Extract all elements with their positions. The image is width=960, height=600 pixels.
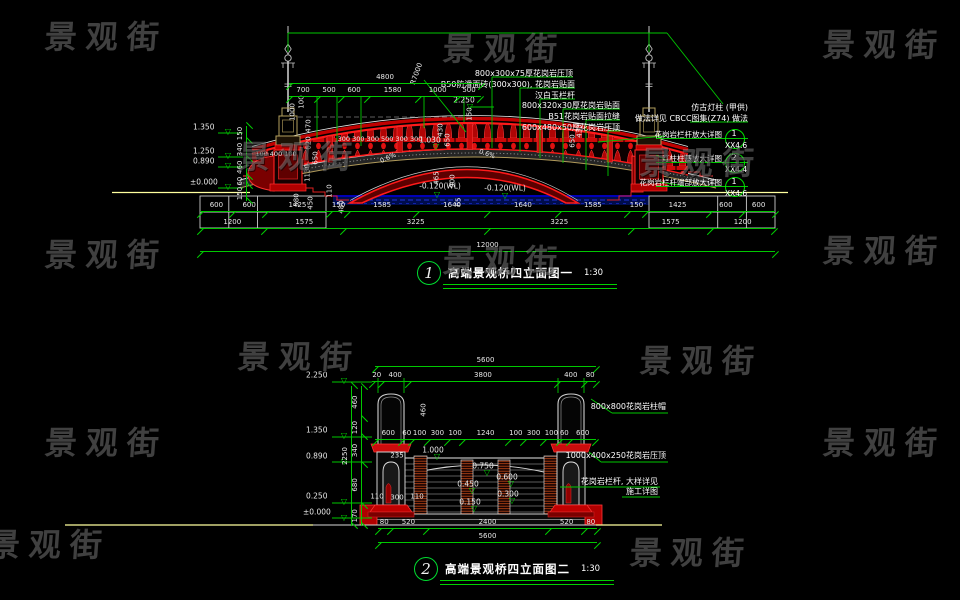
dimension-value: 170 [352,509,359,522]
dimension-value: 1425 [289,202,307,209]
dimension-chain: 15060460340150 [233,126,247,201]
dimension-value: 1425 [669,202,687,209]
drawing-title-text: 高端景观桥四立面图二 [445,561,570,577]
annotation-label: 做法详见 CBCC图集(Z74) 做法 [635,115,748,123]
dimension-label: 650 [570,134,577,147]
dimension-label: 100 400 100 [255,151,296,158]
dimension-value: 100 [448,430,461,437]
dimension-value: 1640 [443,202,461,209]
drawing-title-text: 高端景观桥四立面图一 [448,265,573,281]
annotation-label: 仿古灯柱 (甲供) [691,104,748,112]
dimension-segment: 1575 [631,219,710,228]
dimension-segment: 3800 [409,372,557,381]
dimension-segment: 2250 [342,386,351,526]
annotation-label: 800x320x30厚花岗岩贴面 [522,102,620,110]
dimension-value: 600 [210,202,223,209]
dimension-segment: 80 [378,519,390,528]
dimension-chain: 2250 [338,386,352,526]
dimension-value: 120 [352,421,359,434]
dimension-segment: 1240 [463,430,508,439]
dimension-label: ±0.000 [190,178,218,186]
level-marker-icon: ▽ [434,453,440,461]
dimension-chain: 4800 [289,70,481,84]
dimension-value: 60 [560,430,569,437]
dimension-label: 235 [390,453,403,460]
dimension-label: 300 300 300 500 300 300 [338,136,423,143]
dimension-chain: 70050060015801000500 [289,83,481,97]
dimension-segment: 400 [382,372,409,381]
dimension-value: 20 [372,372,381,379]
drawing-title-1: 1 高端景观桥四立面图一 1:30 [417,261,617,285]
dimension-value: 700 [296,87,309,94]
dimension-label: 2.250 [306,371,327,379]
dimension-segment: 1585 [348,202,417,211]
dimension-label: -0.120(WL) [419,182,461,190]
dimension-segment: 600 [709,202,742,211]
dimension-label: 650 [313,151,320,164]
dimension-segment: 500 [317,87,341,96]
annotation-label: 800x800花岗岩柱帽 [591,403,666,411]
dimension-value: 1000 [429,87,447,94]
dimension-value: 340 [352,444,359,457]
dimension-value: 520 [402,519,415,526]
dimension-segment: 600 [233,202,266,211]
dimension-value: 150 [237,127,244,140]
level-marker-icon: ▽ [484,469,490,477]
dimension-segment: 150 [329,202,347,211]
dimension-value: 460 [237,161,244,174]
dimension-value: 600 [242,202,255,209]
level-marker-icon: ▽ [469,487,475,495]
dimension-segment: 100 [412,430,428,439]
dimension-segment: 5600 [378,533,597,542]
dimension-chain: 5600 [378,529,597,543]
dimension-segment: 460 [237,158,246,176]
dimension-label: 1000 [290,103,297,121]
cad-sheet: 1 高端景观桥四立面图一 1:30 2 高端景观桥四立面图二 1:30 景观街景… [0,0,960,600]
dimension-chain: 60060100300100124010030010060600 [375,426,596,440]
dimension-segment: 80 [584,372,596,381]
dimension-segment: 300 [524,430,544,439]
dimension-label: 150 [467,107,474,120]
detail-note: 灯柱柱基放大详图 [662,153,722,164]
drawing-scale: 1:30 [584,268,603,278]
dimension-label: 300 [390,495,403,502]
dimension-value: 1640 [514,202,532,209]
detail-number-badge: 2 [414,557,438,581]
dimension-segment: 1200 [200,219,265,228]
dimension-segment: 600 [742,202,775,211]
dimension-segment: 1000 [418,87,457,96]
dimension-segment: 1585 [558,202,627,211]
dimension-segment: 600 [375,430,402,439]
level-marker-icon: ▽ [225,162,231,170]
dimension-segment: 1580 [367,87,418,96]
dimension-value: 500 [462,87,475,94]
dimension-value: 1585 [373,202,391,209]
level-marker-icon: ▽ [225,128,231,136]
dimension-chain: 12000 [200,238,775,252]
dimension-value: 1575 [295,219,313,226]
dimension-label: ±0.000 [303,508,331,516]
level-marker-icon: ▽ [471,505,477,513]
dimension-segment: 12000 [200,242,775,251]
dimension-segment: 3225 [487,219,631,228]
dimension-value: 600 [382,430,395,437]
level-marker-icon: ▽ [433,143,439,151]
dimension-segment: 1640 [488,202,559,211]
dimension-segment: 4800 [289,74,481,83]
dimension-segment: 60 [402,430,412,439]
dimension-segment: 700 [289,87,317,96]
sheet-code: XX4.4 [725,165,747,174]
dimension-value: 150 [630,202,643,209]
dimension-segment: 1425 [646,202,710,211]
annotation-label: 施工详图 [626,488,658,496]
level-marker-icon: ▽ [509,497,515,505]
dimension-value: 3225 [407,219,425,226]
dimension-value: 300 [431,430,444,437]
dimension-label: 0.890 [193,157,214,165]
detail-number: 1 [725,177,743,186]
dimension-label: 0.890 [306,452,327,460]
dimension-label: 110 [410,494,423,501]
dimension-chain: 80520240052080 [378,515,597,529]
dimension-label: 110 [327,184,334,197]
dimension-segment: 600 [341,87,367,96]
dimension-value: 300 [527,430,540,437]
dimension-value: 5600 [477,357,495,364]
dimension-value: 60 [237,177,244,186]
detail-number: 2 [725,153,743,162]
dimension-segment: 2400 [426,519,548,528]
dimension-segment: 500 [457,87,481,96]
sheet-code: XX4.6 [725,189,747,198]
drawing-scale: 1:30 [581,564,600,574]
dimension-segment: 60 [559,430,569,439]
dimension-value: 150 [332,202,345,209]
dimension-value: 100 [509,430,522,437]
dimension-value: 600 [752,202,765,209]
level-marker-icon: ▽ [508,480,514,488]
dimension-chain: 6006001425150158516401640158515014256006… [200,198,775,212]
dimension-value: 460 [352,396,359,409]
dimension-value: 2250 [342,447,349,465]
dimension-segment: 100 [508,430,524,439]
dimension-segment: 460 [352,386,361,418]
detail-number: 1 [725,129,743,138]
dimension-value: 520 [560,519,573,526]
dimension-segment: 5600 [375,357,596,366]
dimension-segment: 1200 [710,219,775,228]
annotation-label: 花岗岩栏杆, 大样详见 [581,478,658,486]
dimension-segment: 1640 [417,202,488,211]
dimension-segment: 150 [237,126,246,141]
dimension-value: 12000 [476,242,498,249]
dimension-segment: 520 [549,519,585,528]
dimension-segment: 520 [390,519,426,528]
dimension-value: 400 [564,372,577,379]
dimension-value: 5600 [479,533,497,540]
dimension-segment: 60 [237,176,246,186]
dimension-segment: 20 [372,372,382,381]
detail-note: 花岗岩栏杆放大详图 [655,129,723,140]
annotation-label: 1000x400x250花岗岩压顶 [566,452,666,460]
detail-note: 花岗岩栏杆端部放大详图 [640,177,723,188]
annotation-label: 汉白玉栏杆 [535,92,575,100]
level-marker-icon: ▽ [341,377,347,385]
dimension-value: 600 [576,430,589,437]
dimension-segment: 120 [352,418,361,436]
dimension-segment: 100 [544,430,560,439]
detail-number-badge: 1 [417,261,441,285]
dimension-label: 620 [306,136,313,149]
dimension-value: 80 [586,519,595,526]
dimension-segment: 1575 [265,219,344,228]
dimension-label: 470 [306,119,313,132]
dimension-value: 60 [402,430,411,437]
dimension-segment: 340 [237,141,246,158]
dimension-label: 0.250 [306,492,327,500]
level-marker-icon: ▽ [225,183,231,191]
dimension-segment: 150 [627,202,645,211]
dimension-segment: 150 [237,186,246,201]
dimension-segment: 600 [569,430,596,439]
dimension-value: 500 [322,87,335,94]
dimension-value: 600 [719,202,732,209]
dimension-label: 100 [299,95,306,108]
dimension-label: 1.250 [193,147,214,155]
dimension-value: 80 [586,372,595,379]
dimension-chain: 20400380040080 [372,368,596,382]
annotation-label: 600x480x50厚花岗岩压顶 [522,124,620,132]
dimension-label: 1.350 [306,426,327,434]
dimension-value: 4800 [376,74,394,81]
dimension-segment: 3225 [344,219,488,228]
annotation-label: B51花岗岩贴面拉缝 [548,113,620,121]
annotation-label: 800x300x75厚花岗岩压顶 [475,70,573,78]
dimension-value: 80 [380,519,389,526]
dimension-segment: 1425 [266,202,330,211]
dimension-segment: 600 [200,202,233,211]
dimension-value: 3800 [474,372,492,379]
dimension-value: 600 [347,87,360,94]
dimension-value: 2400 [479,519,497,526]
dimension-value: 150 [237,187,244,200]
dimension-segment: 80 [585,519,597,528]
dimension-value: 1200 [223,219,241,226]
dimension-segment: 300 [427,430,447,439]
dimension-value: 1580 [384,87,402,94]
dimension-segment: 680 [352,464,361,505]
dimension-value: 100 [413,430,426,437]
dimension-value: 1585 [584,202,602,209]
drawing-title-2: 2 高端景观桥四立面图二 1:30 [414,557,614,581]
dimension-value: 1575 [662,219,680,226]
dimension-label: 650 [445,133,452,146]
level-marker-icon: ▽ [225,152,231,160]
dimension-value: 400 [388,372,401,379]
dimension-label: 1.350 [193,123,214,131]
sheet-code: XX4.6 [725,141,747,150]
dimension-label: 110 [370,494,383,501]
dimension-chain: 120015753225322515751200 [200,215,775,229]
dimension-segment: 100 [447,430,463,439]
dimension-value: 1240 [477,430,495,437]
dimension-value: 3225 [550,219,568,226]
dimension-label: 460 [421,403,428,416]
dimension-value: 100 [545,430,558,437]
dimension-segment: 340 [352,437,361,464]
dimension-value: 340 [237,143,244,156]
dimension-chain: 5600 [375,353,596,367]
dimension-value: 1200 [734,219,752,226]
dimension-segment: 400 [557,372,584,381]
dimension-value: 680 [352,478,359,491]
dimension-label: 1130 [305,164,312,182]
